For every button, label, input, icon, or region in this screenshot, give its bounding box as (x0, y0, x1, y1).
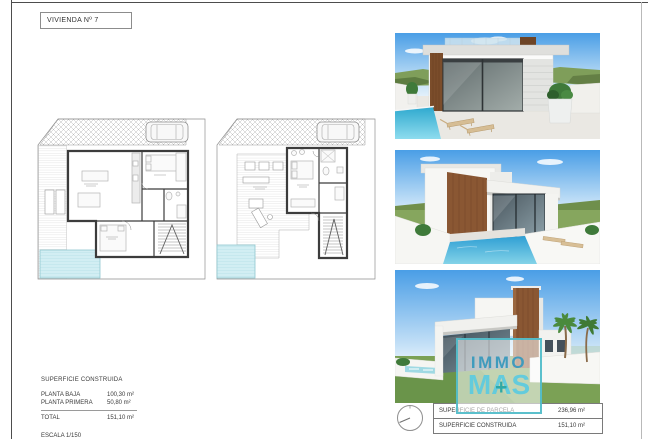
pool (40, 250, 100, 278)
scale-note: ESCALA 1/150 (41, 433, 145, 439)
render-front-pool (395, 33, 600, 139)
surface-summary: SUPERFICIE CONSTRUIDA PLANTA BAJA 100,30… (41, 377, 145, 439)
wood-panel (430, 53, 443, 111)
floor-plan-planta-baja (36, 117, 208, 287)
render-side-pool (395, 150, 600, 264)
car-icon (317, 121, 359, 144)
sheet-border-top (11, 2, 648, 3)
sheet-border-left (11, 0, 12, 439)
summary-row: PLANTA PRIMERA 50,80 m² (41, 399, 145, 407)
floor-plan-planta-primera (215, 117, 378, 287)
pool-water (395, 107, 441, 139)
immo-mas-logo: IMMO M A + S (456, 338, 542, 414)
dwelling-title: VIVIENDA Nº 7 (40, 12, 132, 29)
logo-letter-a: A + (491, 372, 511, 398)
summary-total-row: TOTAL 151,10 m² (41, 410, 137, 422)
bush (415, 224, 431, 236)
sheet-border-right (641, 2, 642, 439)
plan-sheet: VIVIENDA Nº 7 (0, 0, 648, 439)
compass-icon (396, 404, 424, 432)
logo-plus-icon: + (495, 375, 507, 401)
summary-heading: SUPERFICIE CONSTRUIDA (41, 377, 145, 383)
summary-row: PLANTA BAJA 100,30 m² (41, 391, 145, 399)
roof-slab (423, 45, 569, 55)
logo-letter-m: M (468, 372, 491, 398)
planter-right (547, 83, 573, 123)
car-icon (146, 121, 188, 144)
logo-letter-s: S (511, 372, 530, 398)
logo-mas-text: M A + S (468, 372, 530, 398)
parcel-table-row: SUPERFICIE CONSTRUIDA 151,10 m² (434, 418, 602, 433)
pool (217, 245, 255, 278)
